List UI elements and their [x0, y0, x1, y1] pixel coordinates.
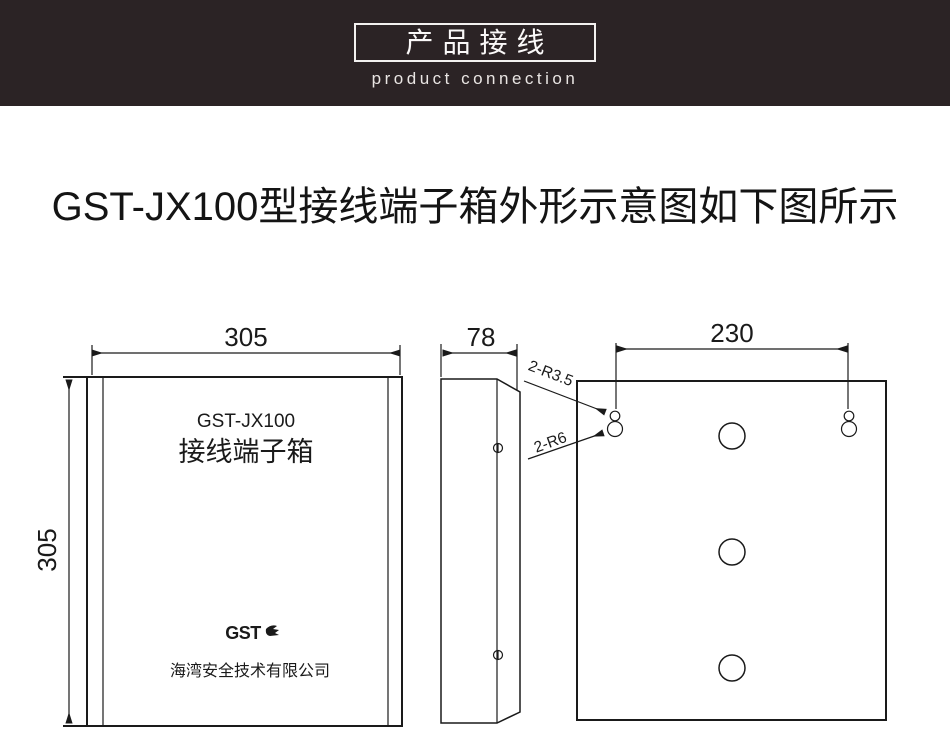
gst-logo: GST	[225, 623, 279, 643]
cable-hole-top	[719, 423, 745, 449]
large-keyhole-label: 2-R6	[532, 429, 569, 456]
front-product-name-text: 接线端子箱	[179, 437, 314, 467]
side-depth-value: 78	[467, 322, 496, 352]
front-company-text: 海湾安全技术有限公司	[170, 662, 330, 680]
back-plate-outline	[577, 381, 886, 720]
side-depth-dimension: 78	[441, 322, 517, 390]
gst-logo-text: GST	[225, 623, 261, 643]
cable-hole-bottom	[719, 655, 745, 681]
technical-drawing: 305 305 GST-JX100 接线端子箱 GST 海湾安全技术有限公司	[0, 0, 950, 752]
front-height-dimension: 305	[32, 377, 87, 726]
front-height-value: 305	[32, 528, 62, 571]
mounting-keyhole-right	[842, 411, 857, 436]
front-width-dimension: 305	[92, 322, 400, 375]
back-view: 230 2-R3.5	[524, 318, 886, 720]
front-view: 305 305 GST-JX100 接线端子箱 GST 海湾安全技术有限公司	[32, 322, 402, 726]
small-keyhole-callout: 2-R3.5	[524, 358, 605, 412]
manual-page: 产品接线 product connection GST-JX100型接线端子箱外…	[0, 0, 950, 752]
back-hole-spacing-dimension: 230	[616, 318, 848, 409]
front-model-text: GST-JX100	[197, 411, 295, 432]
large-keyhole-callout: 2-R6	[528, 429, 603, 459]
gst-logo-flame-icon	[266, 625, 279, 636]
front-width-value: 305	[224, 322, 267, 352]
side-screw-top	[494, 444, 503, 453]
back-hole-spacing-value: 230	[710, 318, 753, 348]
mounting-keyhole-left	[608, 411, 623, 436]
cable-hole-middle	[719, 539, 745, 565]
side-view: 78	[441, 322, 520, 723]
side-screw-bottom	[494, 651, 503, 660]
side-outline	[441, 379, 520, 723]
